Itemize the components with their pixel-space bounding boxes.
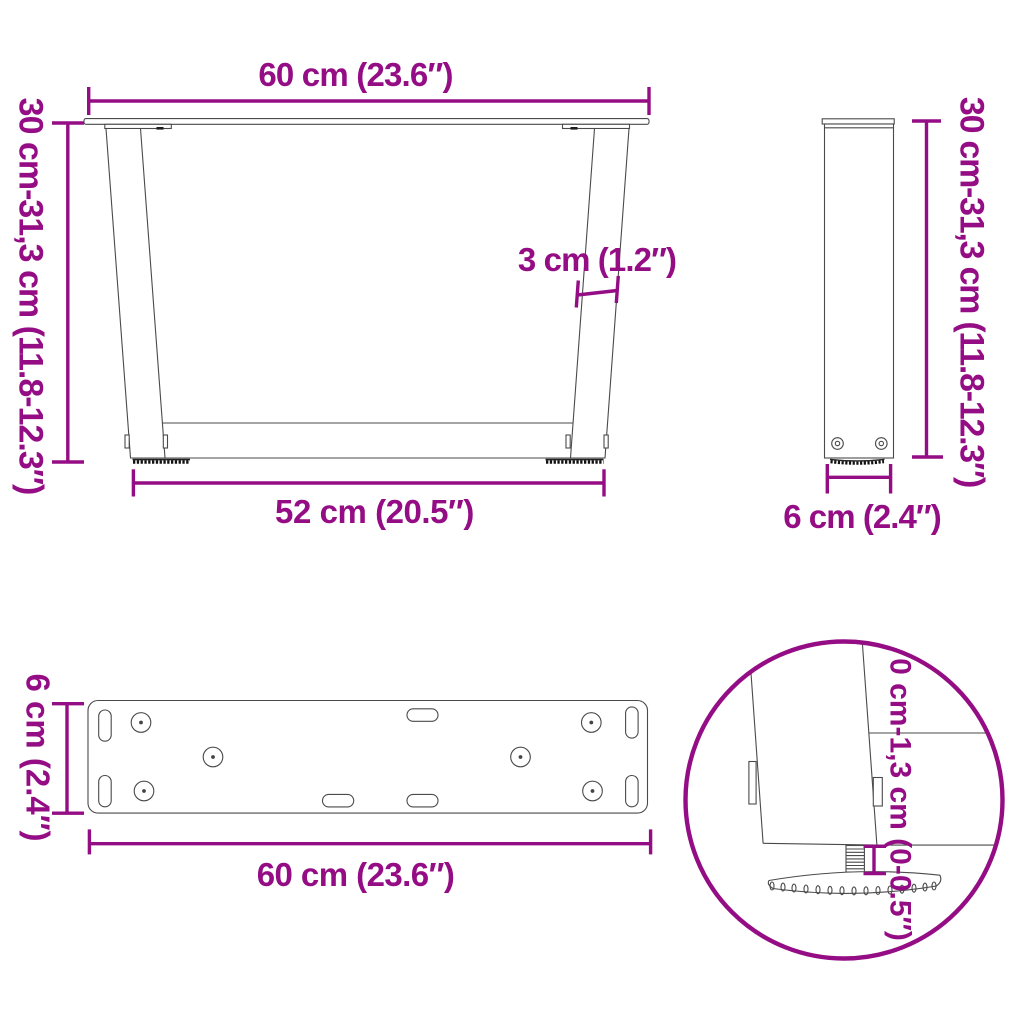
svg-text:60 cm (23.6″): 60 cm (23.6″) <box>257 856 455 893</box>
svg-text:52 cm (20.5″): 52 cm (20.5″) <box>275 493 474 530</box>
svg-text:6 cm (2.4″): 6 cm (2.4″) <box>20 673 57 841</box>
svg-text:30 cm-31,3 cm (11.8-12.3″): 30 cm-31,3 cm (11.8-12.3″) <box>12 98 50 495</box>
svg-text:60 cm (23.6″): 60 cm (23.6″) <box>258 56 452 93</box>
svg-text:3 cm (1.2″): 3 cm (1.2″) <box>518 241 676 278</box>
svg-text:6 cm (2.4″): 6 cm (2.4″) <box>783 498 941 535</box>
svg-text:30 cm-31,3 cm (11.8-12.3″): 30 cm-31,3 cm (11.8-12.3″) <box>953 97 991 487</box>
svg-text:0 cm-1,3 cm (0-0.5″): 0 cm-1,3 cm (0-0.5″) <box>884 658 917 941</box>
